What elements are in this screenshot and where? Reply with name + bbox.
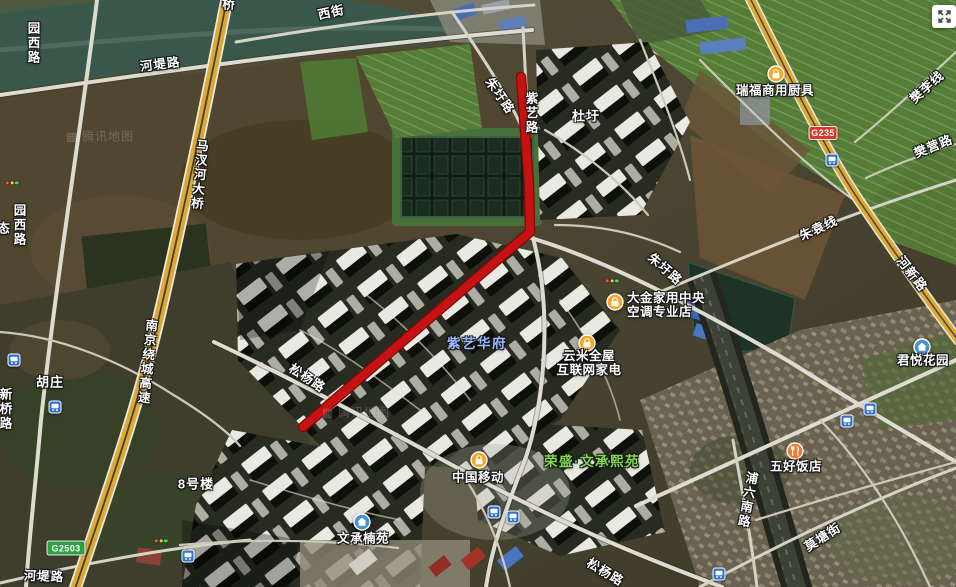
road-shield-G2503: G2503 xyxy=(47,541,86,556)
road-label-hetilu-top: 河堤路 xyxy=(139,51,182,75)
road-label-qiao-partial: 桥 xyxy=(222,0,236,13)
road-label-zhuweilu-e: 朱圩路 xyxy=(644,248,687,289)
road-label-zhuyuanxian: 朱袁线 xyxy=(796,210,841,244)
road-label-yuanxilu-mid: 园西路 xyxy=(10,203,29,247)
bus-stop-icon[interactable] xyxy=(49,401,62,414)
bus-stop-icon[interactable] xyxy=(713,568,726,581)
expand-icon xyxy=(937,9,952,24)
road-label-yuanxilu-top: 园西路 xyxy=(24,21,43,65)
road-label-fanlixian: 樊李线 xyxy=(905,65,948,106)
bus-stop-icon[interactable] xyxy=(841,415,854,428)
bus-stop-icon[interactable] xyxy=(864,403,877,416)
village-label-duwei: 杜圩 xyxy=(572,106,600,125)
road-label-hexinlu: 河新路 xyxy=(893,251,933,295)
road-label-machahe-daqiao: 马汊河大桥 xyxy=(186,138,211,212)
poi-label-ruifu-shangyong-chuju[interactable]: 瑞福商用厨具 xyxy=(736,84,814,98)
road-label-fanyinglu: 樊营路 xyxy=(911,129,956,162)
traffic-light-dots xyxy=(606,279,619,282)
bus-stop-icon[interactable] xyxy=(182,550,195,563)
house-icon[interactable] xyxy=(353,513,371,531)
road-label-songyanglu-s: 松杨路 xyxy=(584,552,629,587)
road-label-nanjing-raocheng-gaosu: 南京绕城高速 xyxy=(133,318,161,407)
estate-label-ziyi-huafu[interactable]: 紫艺华府 xyxy=(447,332,507,352)
bus-stop-icon[interactable] xyxy=(8,354,21,367)
fullscreen-button[interactable] xyxy=(932,5,956,28)
tencent-watermark: ▦腾讯地图 xyxy=(66,128,134,145)
road-label-puliunanlu: 浦六南路 xyxy=(733,470,762,530)
building-label-bahaolou: 8号楼 xyxy=(178,474,214,493)
road-label-tai-partial: 态 xyxy=(0,218,11,237)
shopping-bag-icon[interactable] xyxy=(606,293,624,311)
road-label-ziyilu: 紫艺路 xyxy=(522,91,541,135)
restaurant-icon[interactable] xyxy=(786,442,804,460)
road-shield-G235: G235 xyxy=(809,126,838,140)
road-label-hetilu-bottom: 河堤路 xyxy=(23,565,64,585)
shopping-bag-icon[interactable] xyxy=(767,65,785,83)
bus-stop-icon[interactable] xyxy=(507,511,520,524)
bus-stop-icon[interactable] xyxy=(826,154,839,167)
poi-label-dajin-zhongyang-kongtiao[interactable]: 大金家用中央空调专业店 xyxy=(627,292,705,319)
poi-label-junyue-huayuan[interactable]: 君悦花园 xyxy=(897,354,949,368)
map-viewport[interactable]: 西街河堤路园西路桥马汊河大桥园西路态南京绕城高速胡庄新桥路河堤路松杨路松杨路朱圩… xyxy=(0,0,956,587)
traffic-light-dots xyxy=(6,181,19,184)
road-label-motangjie: 莫塘街 xyxy=(800,517,844,555)
shopping-bag-icon[interactable] xyxy=(470,451,488,469)
poi-label-yunmi-hulianwang-jiadian[interactable]: 云米全屋互联网家电 xyxy=(556,350,621,377)
poi-label-wencheng-nanyuan[interactable]: 文承楠苑 xyxy=(337,532,389,546)
traffic-light-dots xyxy=(155,539,168,542)
road-label-xinqiaolu: 新桥路 xyxy=(0,387,15,431)
road-label-zhuweilu-n: 朱圩路 xyxy=(482,73,521,117)
road-label-songyanglu-w: 松杨路 xyxy=(286,358,330,396)
poi-label-wuhao-fandian[interactable]: 五好饭店 xyxy=(770,460,822,474)
bus-stop-icon[interactable] xyxy=(488,506,501,519)
estate-label-rongsheng-wencheng-xiyuan[interactable]: 荣盛·文承熙苑 xyxy=(544,450,640,470)
village-label-huzhuang: 胡庄 xyxy=(36,372,64,391)
poi-label-zhongguo-yidong[interactable]: 中国移动 xyxy=(452,471,504,485)
tencent-watermark: ▦腾讯地图 xyxy=(322,404,390,421)
road-label-xijie: 西街 xyxy=(316,0,346,23)
map-labels-overlay: 西街河堤路园西路桥马汊河大桥园西路态南京绕城高速胡庄新桥路河堤路松杨路松杨路朱圩… xyxy=(0,0,956,587)
